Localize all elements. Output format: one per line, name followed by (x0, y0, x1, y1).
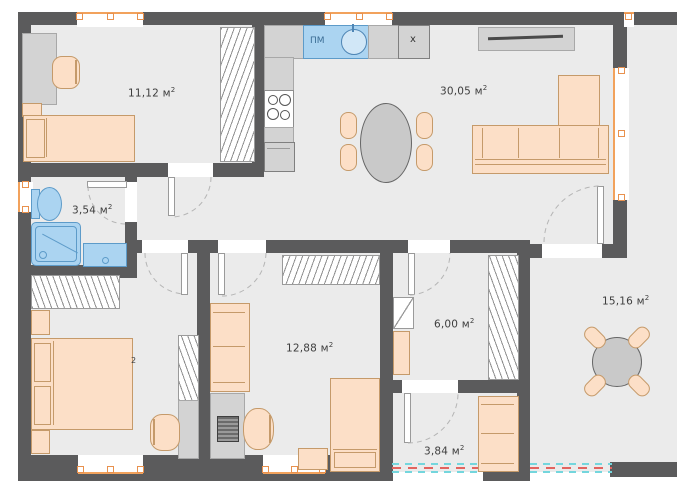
door-leaf (181, 253, 188, 295)
door-leaf (168, 177, 175, 216)
boundary-cyan-line (530, 463, 612, 465)
wardrobe (282, 255, 380, 285)
dining-chair (340, 144, 357, 171)
floor-plan: 11,12 м2 ПМ x 30,05 м2 (0, 0, 698, 502)
window-top-3 (624, 12, 634, 27)
dishwasher-label: ПМ (310, 36, 325, 46)
nightstand (31, 430, 50, 454)
dining-table (360, 103, 412, 183)
sofa-base (472, 125, 609, 174)
door-leaf (404, 393, 411, 443)
unit-x-label: x (410, 34, 416, 45)
boundary-cyan-line (392, 463, 483, 465)
wardrobe (488, 255, 519, 380)
boundary-cyan-line (530, 471, 612, 473)
wall-corner-bottom-right (610, 462, 677, 477)
stove (264, 90, 294, 129)
bed-single (23, 115, 135, 162)
cabinet (178, 335, 199, 402)
sink-icon (341, 29, 367, 55)
door-gap-kids (168, 163, 213, 177)
room-label-porch: 3,84 м2 (424, 444, 465, 458)
bed-single (330, 378, 380, 472)
floor-terrace (627, 25, 677, 462)
washer (83, 243, 127, 267)
dining-chair (340, 112, 357, 139)
door-gap-porch (402, 380, 458, 393)
door-leaf (218, 253, 225, 295)
bathtub (31, 222, 81, 266)
door-gap-bedroom1 (142, 240, 188, 253)
desk (210, 393, 245, 459)
kitchen-counter (264, 25, 305, 59)
door-leaf (597, 186, 604, 244)
dishwasher: ПМ (303, 25, 370, 59)
kitchen-counter (368, 25, 400, 59)
window-top-1 (77, 12, 143, 27)
wardrobe (31, 275, 120, 309)
door-gap-bedroom2 (218, 240, 266, 253)
desk (178, 400, 199, 459)
bench (393, 331, 410, 375)
office-chair (243, 408, 274, 450)
tv-icon (488, 35, 563, 41)
room-label-bedroom2: 12,88 м2 (286, 341, 333, 355)
wardrobe (220, 27, 255, 162)
chair (52, 56, 80, 89)
chair (150, 414, 180, 451)
toilet-bowl (37, 187, 62, 221)
nightstand (31, 310, 50, 335)
kitchen-counter (264, 57, 294, 92)
fridge (264, 142, 295, 172)
boundary-cyan-line (392, 471, 483, 473)
door-leaf (87, 181, 127, 188)
sofa-chaise (558, 75, 600, 129)
room-label-kids: 11,12 м2 (128, 86, 175, 100)
laptop-icon (217, 416, 239, 442)
wall-kidsroom-bottom (18, 163, 264, 177)
window-right-terrace-door (613, 68, 629, 200)
kitchen-unit-x: x (398, 25, 430, 59)
room-label-hallway: 6,00 м2 (434, 317, 475, 331)
tv-stand (478, 27, 575, 51)
ottoman (298, 448, 328, 470)
door-gap-bath (125, 182, 137, 222)
boundary-red-line (530, 467, 612, 469)
loveseat (478, 396, 519, 472)
room-label-terrace: 15,16 м2 (602, 294, 649, 308)
loveseat (210, 303, 250, 392)
door-gap-hallway (408, 240, 450, 253)
door-leaf (408, 253, 415, 295)
window-bottom-1 (78, 455, 143, 474)
shoe-cabinet (393, 297, 414, 329)
dining-chair (416, 112, 433, 139)
room-label-bedroom-sup: 2 (131, 356, 136, 365)
room-label-bath: 3,54 м2 (72, 203, 113, 217)
room-label-living: 30,05 м2 (440, 84, 487, 98)
wall-bedroom2-right (380, 253, 393, 481)
dining-chair (416, 144, 433, 171)
boundary-red-line (392, 467, 483, 469)
bed-double (31, 338, 133, 430)
door-gap-terrace (542, 244, 602, 258)
